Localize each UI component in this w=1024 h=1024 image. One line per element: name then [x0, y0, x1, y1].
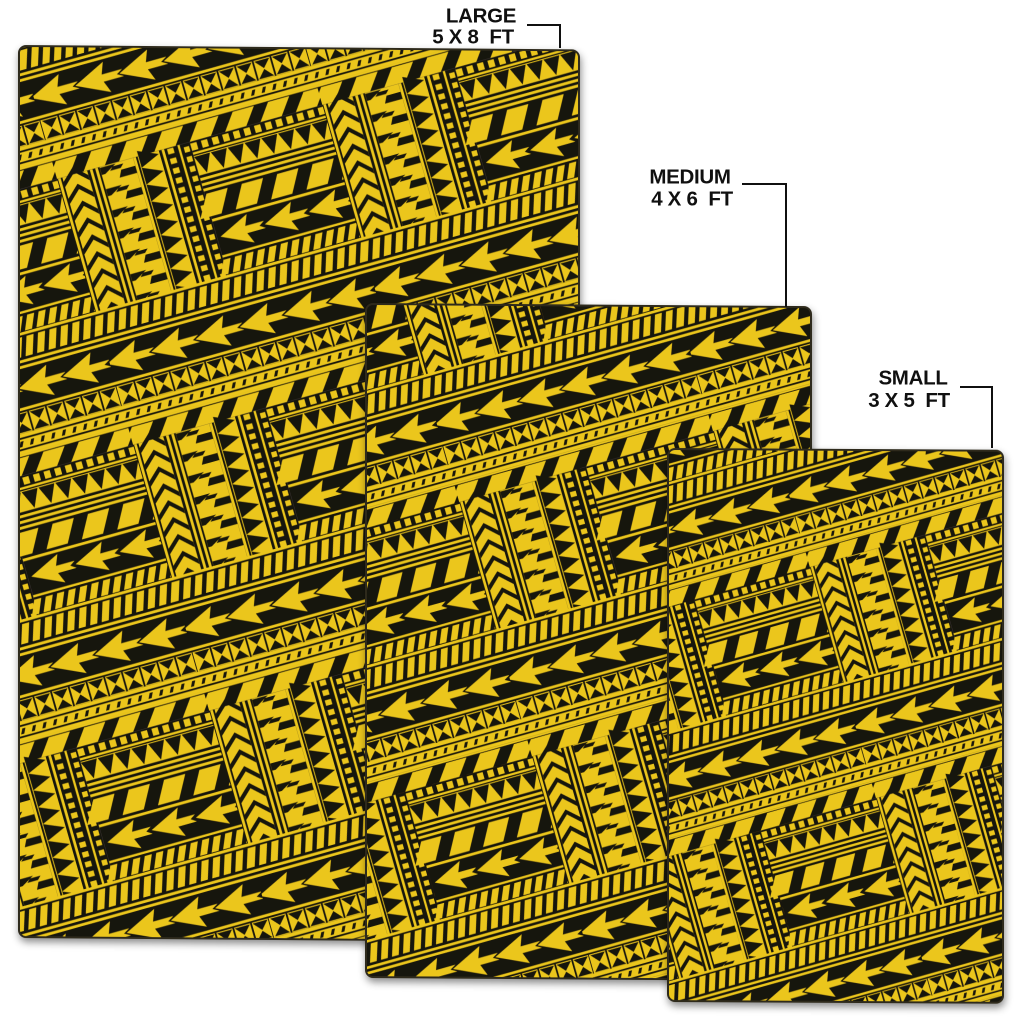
svg-text:SMALL: SMALL: [878, 367, 947, 390]
svg-text:4 X 6 FT: 4 X 6 FT: [651, 188, 733, 211]
svg-text:LARGE: LARGE: [446, 5, 516, 28]
svg-text:MEDIUM: MEDIUM: [649, 166, 730, 189]
svg-text:3 X 5 FT: 3 X 5 FT: [868, 389, 950, 412]
svg-text:5 X 8 FT: 5 X 8 FT: [432, 26, 514, 49]
